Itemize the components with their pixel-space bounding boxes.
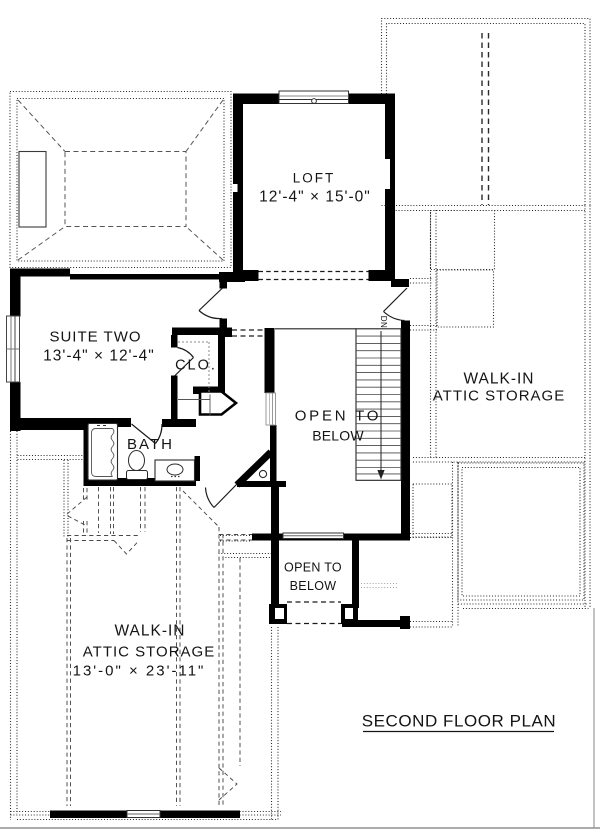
svg-text:SECOND FLOOR PLAN: SECOND FLOOR PLAN	[362, 712, 557, 731]
svg-text:WALK-IN: WALK-IN	[114, 623, 185, 640]
svg-text:13'-4" × 12'-4": 13'-4" × 12'-4"	[43, 348, 155, 365]
svg-text:WALK-IN: WALK-IN	[463, 371, 534, 388]
svg-text:12'-4" × 15'-0": 12'-4" × 15'-0"	[259, 189, 371, 206]
svg-text:BELOW: BELOW	[290, 579, 337, 593]
svg-text:13'-0" × 23'-11": 13'-0" × 23'-11"	[73, 663, 206, 680]
svg-text:OPEN TO: OPEN TO	[284, 561, 342, 575]
svg-text:CLO.: CLO.	[175, 358, 217, 374]
svg-text:ATTIC STORAGE: ATTIC STORAGE	[433, 388, 565, 405]
svg-text:SUITE TWO: SUITE TWO	[49, 329, 141, 346]
svg-text:ATTIC STORAGE: ATTIC STORAGE	[83, 644, 215, 661]
svg-text:BATH: BATH	[127, 436, 174, 453]
svg-text:BELOW: BELOW	[312, 428, 364, 444]
svg-text:LOFT: LOFT	[293, 171, 336, 186]
svg-text:OPEN TO: OPEN TO	[295, 408, 382, 425]
svg-text:DN: DN	[379, 316, 388, 329]
